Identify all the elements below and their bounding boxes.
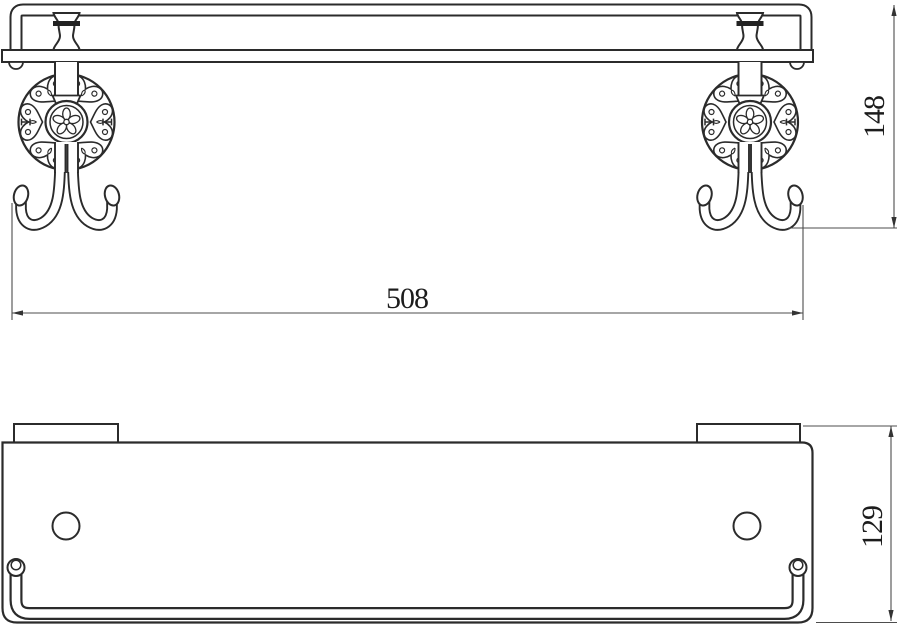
dimension-text-depth: 129 <box>856 506 889 548</box>
arrowhead-top <box>891 5 896 16</box>
plan-view <box>3 424 813 623</box>
dimension-text-width: 508 <box>386 282 428 315</box>
rail-cap-right <box>790 559 807 576</box>
wall-bracket-left <box>14 424 118 444</box>
front-view <box>2 10 813 225</box>
technical-drawing-canvas: 508 148 129 <box>0 0 898 628</box>
arrowhead-bottom <box>891 217 896 228</box>
hook-medallion-right <box>695 62 805 225</box>
lower-rail-left-cap <box>9 62 23 69</box>
shelf-front-bar <box>2 50 813 62</box>
wall-bracket-right <box>697 424 800 444</box>
gallery-rail <box>16 10 806 54</box>
hook-medallion-left <box>12 62 122 225</box>
arrowhead-bottom <box>888 610 893 621</box>
rail-cap-left <box>8 559 25 576</box>
shelf-plate <box>3 443 813 623</box>
arrowhead-right <box>792 310 803 315</box>
shelf-dimension-drawing: 508 148 129 <box>0 0 898 628</box>
dimension-overall-depth: 129 <box>803 426 897 623</box>
dimension-overall-width: 508 <box>12 203 803 320</box>
lower-rail-right-cap <box>790 62 804 69</box>
arrowhead-top <box>888 426 893 437</box>
arrowhead-left <box>12 310 23 315</box>
dimension-text-height: 148 <box>858 96 891 138</box>
